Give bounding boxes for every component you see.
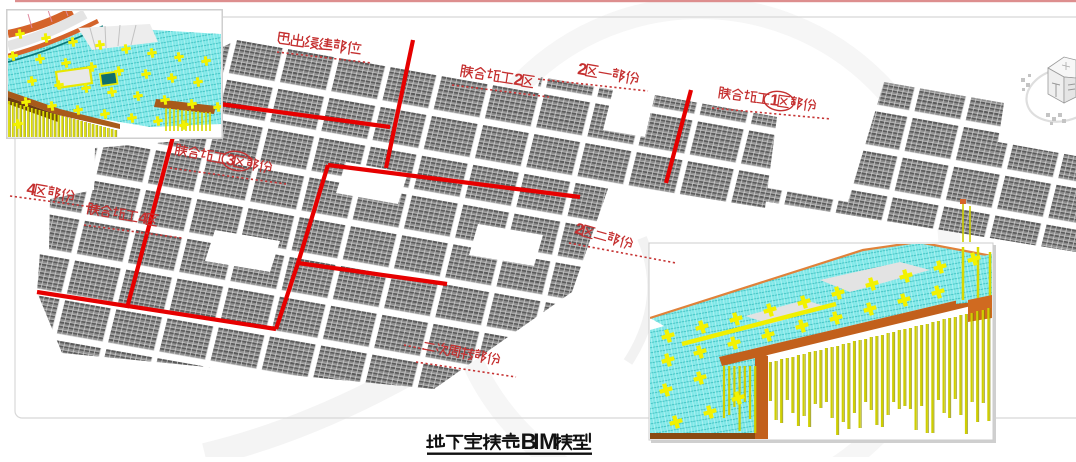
- svg-text:M: M: [539, 429, 558, 454]
